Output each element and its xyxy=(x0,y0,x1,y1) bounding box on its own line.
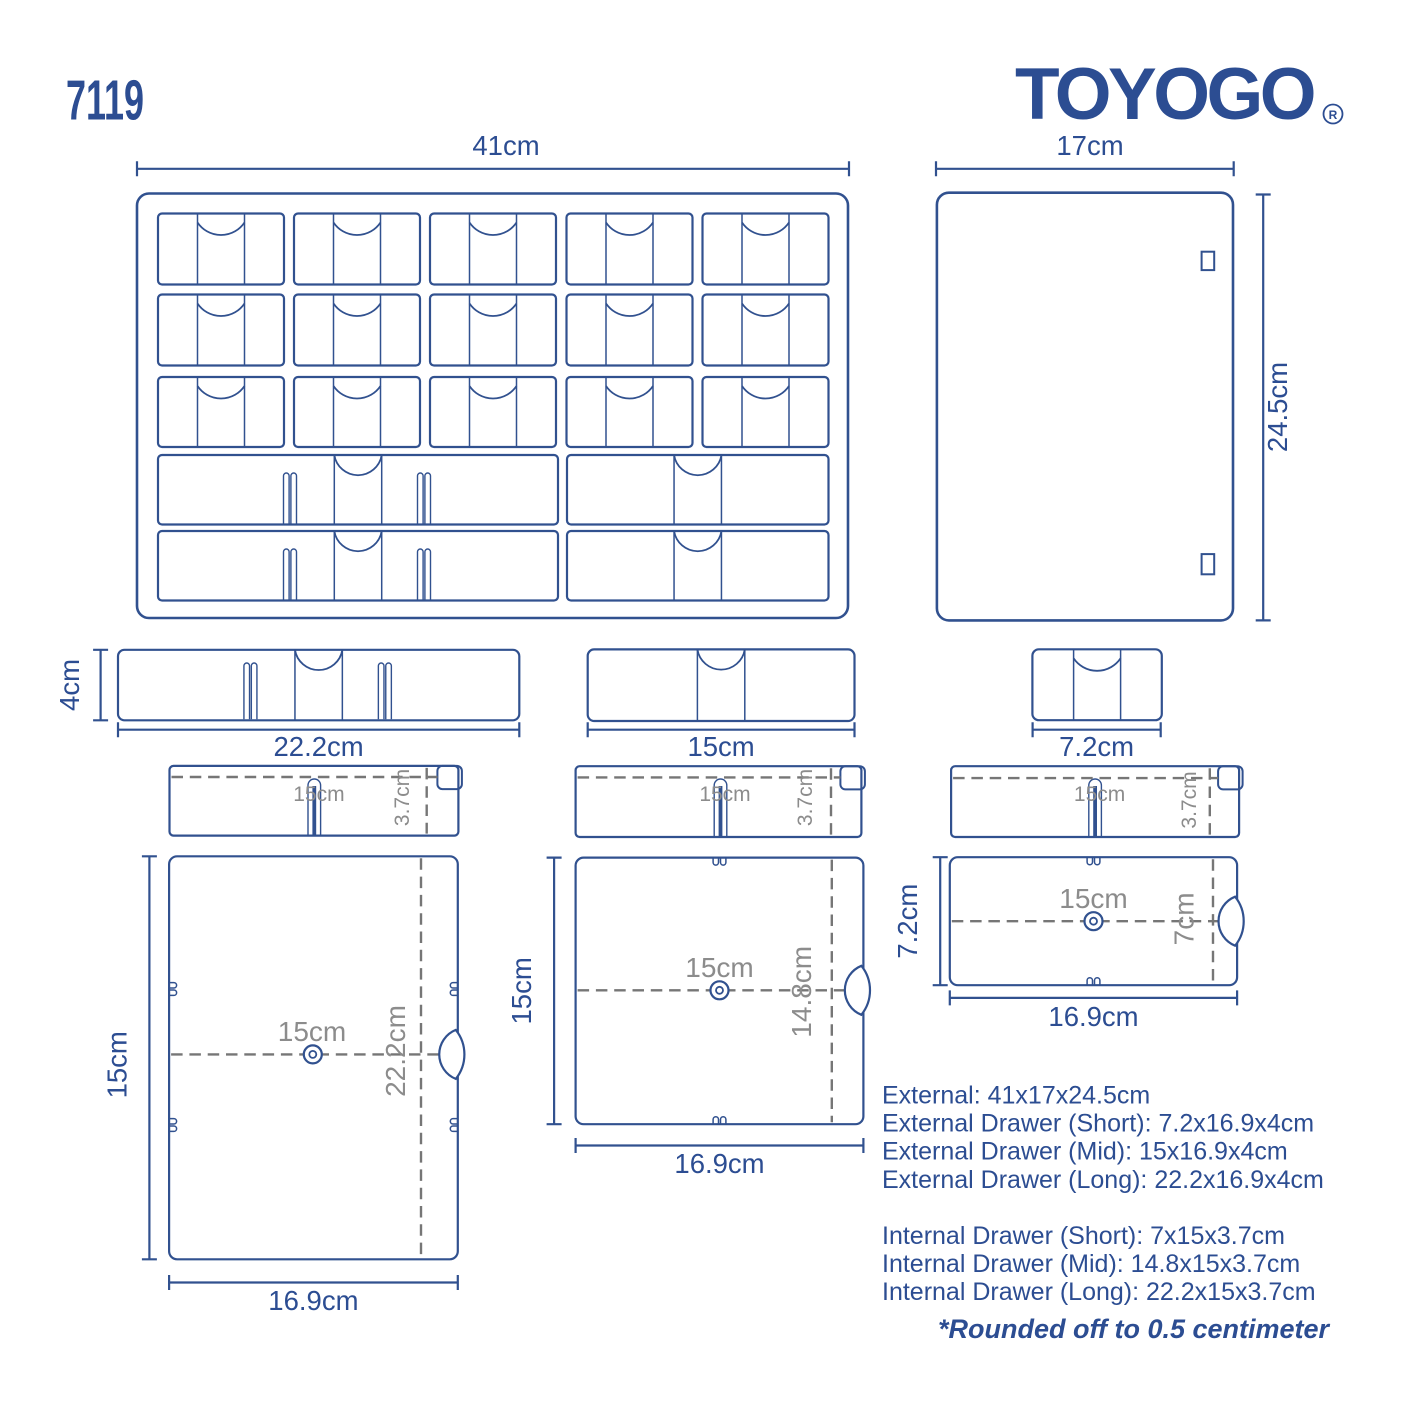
svg-text:15cm: 15cm xyxy=(687,731,754,762)
svg-text:3.7cm: 3.7cm xyxy=(794,769,817,826)
svg-text:External: 41x17x24.5cm: External: 41x17x24.5cm xyxy=(882,1082,1150,1110)
svg-text:7.2cm: 7.2cm xyxy=(1059,731,1134,762)
svg-text:16.9cm: 16.9cm xyxy=(1048,1001,1138,1032)
svg-text:*Rounded off to 0.5 centimeter: *Rounded off to 0.5 centimeter xyxy=(938,1314,1331,1344)
svg-text:3.7cm: 3.7cm xyxy=(1178,771,1201,828)
svg-text:41cm: 41cm xyxy=(472,130,539,161)
svg-text:7.2cm: 7.2cm xyxy=(892,884,923,959)
svg-text:3.7cm: 3.7cm xyxy=(391,769,414,826)
svg-text:16.9cm: 16.9cm xyxy=(268,1285,358,1316)
svg-text:15cm: 15cm xyxy=(506,957,537,1024)
svg-text:16.9cm: 16.9cm xyxy=(674,1148,764,1179)
svg-text:14.8cm: 14.8cm xyxy=(786,946,817,1038)
svg-text:15cm: 15cm xyxy=(699,783,750,806)
svg-text:7119: 7119 xyxy=(66,69,144,133)
svg-text:R: R xyxy=(1329,108,1338,122)
svg-text:22.2cm: 22.2cm xyxy=(274,731,364,762)
svg-text:External Drawer (Mid): 15x16.9: External Drawer (Mid): 15x16.9x4cm xyxy=(882,1138,1288,1166)
svg-text:External Drawer (Short): 7.2x1: External Drawer (Short): 7.2x16.9x4cm xyxy=(882,1110,1314,1138)
svg-text:External Drawer (Long): 22.2x1: External Drawer (Long): 22.2x16.9x4cm xyxy=(882,1166,1324,1194)
svg-text:15cm: 15cm xyxy=(1059,883,1127,914)
svg-text:Internal Drawer (Long): 22.2x1: Internal Drawer (Long): 22.2x15x3.7cm xyxy=(882,1278,1316,1306)
svg-text:15cm: 15cm xyxy=(293,783,344,806)
svg-text:15cm: 15cm xyxy=(1074,783,1125,806)
svg-text:22.2cm: 22.2cm xyxy=(380,1005,411,1097)
svg-text:17cm: 17cm xyxy=(1056,130,1123,161)
svg-text:15cm: 15cm xyxy=(102,1031,133,1098)
svg-text:4cm: 4cm xyxy=(54,659,85,711)
svg-text:15cm: 15cm xyxy=(685,952,753,983)
svg-text:24.5cm: 24.5cm xyxy=(1262,362,1293,452)
svg-text:7cm: 7cm xyxy=(1168,892,1199,945)
svg-text:Internal Drawer (Mid): 14.8x15: Internal Drawer (Mid): 14.8x15x3.7cm xyxy=(882,1250,1300,1278)
svg-text:15cm: 15cm xyxy=(278,1016,346,1047)
svg-text:TOYOGO: TOYOGO xyxy=(1015,54,1314,135)
svg-text:Internal Drawer (Short): 7x15x: Internal Drawer (Short): 7x15x3.7cm xyxy=(882,1222,1285,1250)
